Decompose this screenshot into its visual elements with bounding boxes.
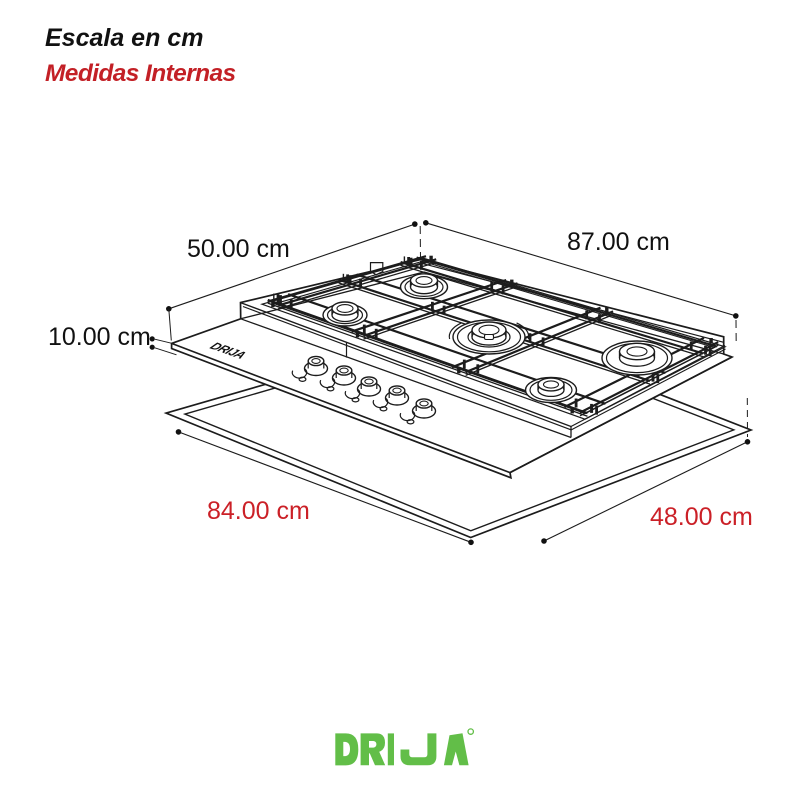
svg-text:84.00 cm: 84.00 cm	[207, 497, 310, 525]
svg-text:50.00 cm: 50.00 cm	[187, 235, 290, 263]
svg-text:Medidas Internas: Medidas Internas	[45, 60, 236, 87]
svg-text:48.00 cm: 48.00 cm	[650, 503, 753, 531]
svg-text:87.00 cm: 87.00 cm	[567, 228, 670, 256]
svg-text:10.00 cm: 10.00 cm	[48, 323, 151, 351]
svg-text:Escala en cm: Escala en cm	[45, 24, 203, 52]
